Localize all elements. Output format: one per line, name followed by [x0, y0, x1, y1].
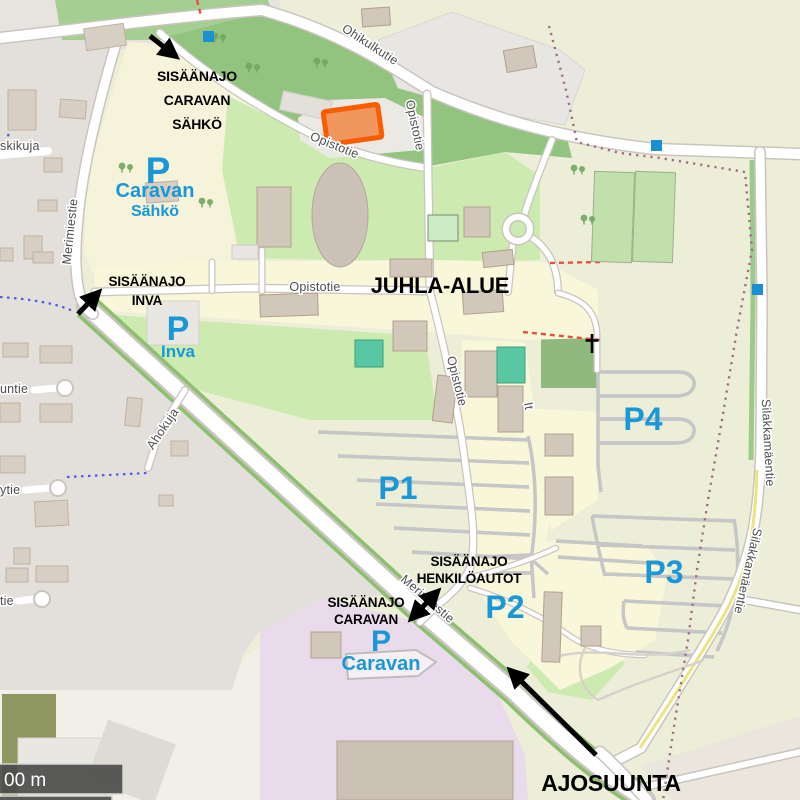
sports-field — [632, 171, 675, 262]
scale-bar: 00 m — [0, 764, 123, 800]
label-p4: P4 — [623, 401, 662, 437]
label-entrance-inva-2: INVA — [132, 293, 163, 308]
cul-de-sac — [57, 380, 73, 396]
label-ajosuunta: AJOSUUNTA — [541, 770, 681, 796]
label-parking-caravan-name: Caravan — [342, 653, 421, 675]
sports-hall — [355, 340, 383, 367]
label-entrance-caravan-sahko-1: SISÄÄNAJO — [157, 68, 237, 84]
label-entrance-caravan-sahko-2: CARAVAN — [164, 92, 231, 108]
cul-de-sac — [50, 480, 66, 496]
street-label-meskikuja: skikuja — [0, 139, 40, 153]
sports-field — [591, 171, 634, 262]
event-map: Ohikulkutie Opistotie Opistotie Opistoti… — [0, 0, 800, 800]
street-label-opistotie-mid: Opistotie — [289, 280, 340, 294]
street-label-untie: untie — [0, 382, 28, 396]
label-entrance-caravan-1: SISÄÄNAJO — [328, 595, 405, 610]
scale-bar-label: 00 m — [4, 770, 46, 791]
label-juhla-alue: JUHLA-ALUE — [371, 273, 510, 298]
transit-stop-marker — [203, 31, 214, 42]
label-entrance-inva-1: SISÄÄNAJO — [109, 274, 186, 289]
transit-stop-marker — [752, 284, 763, 295]
transit-stop-marker — [651, 140, 662, 151]
label-parking-inva-name: Inva — [161, 342, 196, 361]
label-entrance-henkiloautot-1: SISÄÄNAJO — [431, 554, 508, 569]
label-entrance-caravan-sahko-3: SÄHKÖ — [172, 116, 222, 132]
map-canvas[interactable]: Ohikulkutie Opistotie Opistotie Opistoti… — [0, 0, 800, 800]
court — [428, 215, 458, 241]
label-p1: P1 — [378, 470, 417, 506]
running-track — [312, 163, 368, 267]
street-label-ytie: ytie — [0, 483, 20, 497]
street-label-tie: tie — [0, 594, 14, 608]
cul-de-sac — [34, 591, 50, 607]
sports-hall — [497, 347, 525, 383]
label-entrance-henkiloautot-2: HENKILÖAUTOT — [417, 571, 523, 586]
label-p3: P3 — [644, 554, 683, 590]
label-p2: P2 — [485, 589, 524, 625]
label-parking-caravan-sahko-sub: Sähkö — [131, 203, 179, 220]
label-parking-caravan-sahko-name: Caravan — [116, 180, 195, 202]
